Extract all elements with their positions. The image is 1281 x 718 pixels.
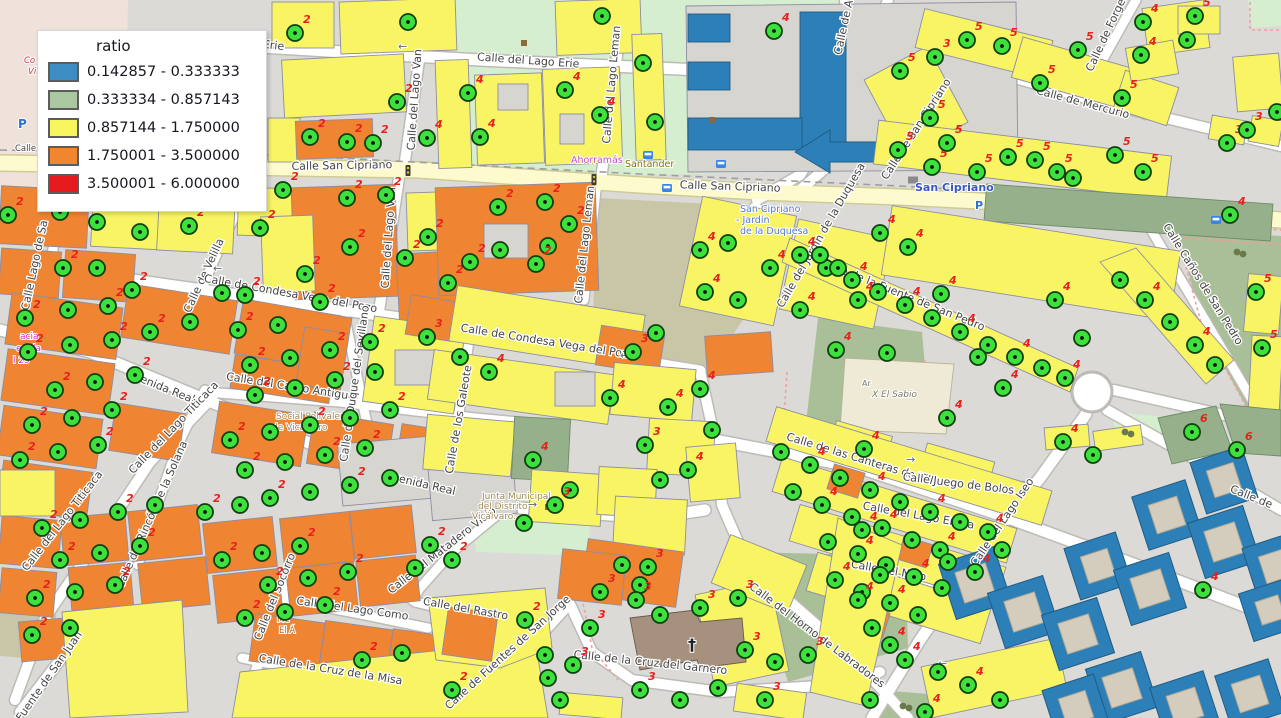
point-marker-dot <box>791 490 795 494</box>
point-marker-dot <box>608 396 612 400</box>
point-marker-dot <box>1190 430 1194 434</box>
value-label: 3 <box>816 635 824 648</box>
point-marker-dot <box>930 165 934 169</box>
building <box>62 600 188 718</box>
point-marker-dot <box>363 446 367 450</box>
point-marker-dot <box>1071 176 1075 180</box>
poi-label: ← <box>213 262 222 275</box>
traffic-light-icon <box>407 171 409 173</box>
point-marker-dot <box>666 405 670 409</box>
point-marker-dot <box>880 526 884 530</box>
value-label: 2 <box>394 175 402 188</box>
point-marker-dot <box>779 450 783 454</box>
building <box>688 14 730 42</box>
value-label: 2 <box>123 565 131 578</box>
point-marker-dot <box>268 496 272 500</box>
value-label: 4 <box>695 450 704 463</box>
point-marker-dot <box>930 316 934 320</box>
value-label: 4 <box>897 625 906 638</box>
point-marker-dot <box>1193 343 1197 347</box>
point-marker-dot <box>768 266 772 270</box>
value-label: 2 <box>405 82 413 95</box>
point-marker-dot <box>936 670 940 674</box>
point-marker-dot <box>698 387 702 391</box>
value-label: 4 <box>921 557 930 570</box>
value-label: 4 <box>865 280 874 293</box>
point-marker-dot <box>868 698 872 702</box>
point-marker-dot <box>1235 448 1239 452</box>
value-label: 4 <box>967 312 976 325</box>
point-marker-dot <box>268 430 272 434</box>
traffic-light-icon <box>593 180 595 182</box>
point-marker-dot <box>820 503 824 507</box>
value-label: 4 <box>1072 358 1081 371</box>
point-marker-dot <box>345 140 349 144</box>
legend-swatch <box>48 146 79 166</box>
value-label: 2 <box>338 330 346 343</box>
value-label: 4 <box>572 70 581 83</box>
value-label: 3 <box>648 670 656 683</box>
point-marker-dot <box>808 463 812 467</box>
legend-label: 3.500001 - 6.000000 <box>87 176 240 192</box>
value-label: 2 <box>213 492 221 505</box>
point-marker-dot <box>903 658 907 662</box>
point-marker-dot <box>220 291 224 295</box>
point-marker-dot <box>1000 548 1004 552</box>
value-label: 4 <box>915 227 924 240</box>
point-marker-dot <box>61 266 65 270</box>
point-marker-dot <box>308 490 312 494</box>
point-marker-dot <box>710 428 714 432</box>
value-label: 6 <box>1200 412 1208 425</box>
value-label: 4 <box>982 552 991 565</box>
value-label: 5 <box>908 51 916 64</box>
value-label: 3 <box>644 580 652 593</box>
point-marker-dot <box>96 443 100 447</box>
point-marker-dot <box>658 478 662 482</box>
point-marker-dot <box>406 20 410 24</box>
value-label: 3 <box>746 578 754 591</box>
value-label: 5 <box>1123 135 1131 148</box>
point-marker-dot <box>130 288 134 292</box>
point-marker-dot <box>23 316 27 320</box>
value-label: 2 <box>63 370 71 383</box>
point-marker-dot <box>281 188 285 192</box>
point-marker-dot <box>346 570 350 574</box>
point-marker-dot <box>658 613 662 617</box>
value-label: 2 <box>291 170 299 183</box>
value-label: 4 <box>947 530 956 543</box>
point-marker-dot <box>425 335 429 339</box>
point-marker-dot <box>328 348 332 352</box>
point-marker-dot <box>425 136 429 140</box>
building <box>688 62 730 90</box>
value-label: 2 <box>533 600 541 613</box>
point-marker-dot <box>450 558 454 562</box>
value-label: 2 <box>43 578 51 591</box>
point-marker-dot <box>833 578 837 582</box>
poi-label: Santander <box>625 159 674 170</box>
point-marker-dot <box>856 598 860 602</box>
point-marker-dot <box>348 483 352 487</box>
point-marker-dot <box>906 245 910 249</box>
point-marker-dot <box>306 576 310 580</box>
value-label: 5 <box>1048 63 1056 76</box>
point-marker-dot <box>885 351 889 355</box>
value-label: 2 <box>276 565 284 578</box>
point-marker-dot <box>850 278 854 282</box>
value-label: 4 <box>829 485 838 498</box>
legend-title: ratio <box>96 37 266 55</box>
point-marker-dot <box>33 596 37 600</box>
value-label: 2 <box>120 320 128 333</box>
point-marker-dot <box>236 328 240 332</box>
point-marker-dot <box>850 515 854 519</box>
value-label: 2 <box>381 123 389 136</box>
point-marker-dot <box>546 676 550 680</box>
point-marker-dot <box>333 378 337 382</box>
value-label: 2 <box>506 187 514 200</box>
value-label: 4 <box>487 117 496 130</box>
tree-icon <box>1128 431 1135 438</box>
value-label: 2 <box>333 435 341 448</box>
value-label: 2 <box>356 552 364 565</box>
point-marker-dot <box>928 510 932 514</box>
point-marker-dot <box>998 698 1002 702</box>
value-label: 4 <box>843 330 852 343</box>
point-marker-dot <box>260 551 264 555</box>
point-marker-dot <box>293 386 297 390</box>
building <box>435 59 472 168</box>
value-label: 2 <box>358 465 366 478</box>
point-marker-dot <box>563 88 567 92</box>
value-label: 2 <box>253 450 261 463</box>
poi-label: P <box>975 199 983 212</box>
point-marker-dot <box>938 548 942 552</box>
value-label: 5 <box>985 152 993 165</box>
value-label: 2 <box>71 248 79 261</box>
point-marker-dot <box>308 423 312 427</box>
point-marker-dot <box>798 253 802 257</box>
point-marker-dot <box>571 663 575 667</box>
value-label: 4 <box>777 248 786 261</box>
bus-stop-icon <box>718 162 725 165</box>
legend-item-0: 0.142857 - 0.333333 <box>48 58 266 86</box>
point-marker-dot <box>958 520 962 524</box>
legend-rows: 0.142857 - 0.3333330.333334 - 0.8571430.… <box>38 58 266 198</box>
tree-icon <box>900 703 907 710</box>
value-label: 3 <box>598 608 606 621</box>
point-marker-dot <box>1139 53 1143 57</box>
value-label: 4 <box>1210 570 1219 583</box>
value-label: 2 <box>140 270 148 283</box>
point-marker-dot <box>496 205 500 209</box>
value-label: 4 <box>1062 280 1071 293</box>
point-marker-dot <box>78 518 82 522</box>
value-label: 2 <box>230 540 238 553</box>
point-marker-dot <box>946 560 950 564</box>
point-marker-dot <box>903 303 907 307</box>
value-label: 2 <box>378 322 386 335</box>
point-marker-dot <box>806 653 810 657</box>
point-marker-dot <box>228 438 232 442</box>
point-marker-dot <box>703 290 707 294</box>
point-marker-dot <box>113 583 117 587</box>
value-label: 2 <box>328 282 336 295</box>
point-marker-dot <box>1225 141 1229 145</box>
value-label: 3 <box>435 317 443 330</box>
point-marker-dot <box>939 292 943 296</box>
value-label: 3 <box>563 485 571 498</box>
point-marker-dot <box>371 141 375 145</box>
point-marker-dot <box>1193 14 1197 18</box>
traffic-light-icon <box>593 176 595 178</box>
point-marker-dot <box>898 500 902 504</box>
bin-icon <box>521 40 527 46</box>
value-label: 2 <box>33 298 41 311</box>
legend-panel: ratio 0.142857 - 0.3333330.333334 - 0.85… <box>37 30 267 212</box>
value-label: 4 <box>712 272 721 285</box>
point-marker-dot <box>95 220 99 224</box>
value-label: 2 <box>358 227 366 240</box>
value-label: 4 <box>932 692 941 705</box>
value-label: 2 <box>268 208 276 221</box>
point-marker-dot <box>68 626 72 630</box>
poi-label: Junta Municipal <box>481 492 551 502</box>
point-marker-dot <box>6 213 10 217</box>
value-label: 4 <box>897 583 906 596</box>
value-label: 3 <box>753 630 761 643</box>
point-marker-dot <box>1040 366 1044 370</box>
legend-label: 1.750001 - 3.500000 <box>87 148 240 164</box>
point-marker-dot <box>646 565 650 569</box>
point-marker-dot <box>73 590 77 594</box>
value-label: 5 <box>1203 0 1211 9</box>
value-label: 4 <box>1237 195 1246 208</box>
value-label: 2 <box>158 312 166 325</box>
value-label: 2 <box>478 242 486 255</box>
value-label: 2 <box>370 640 378 653</box>
point-marker-dot <box>643 443 647 447</box>
legend-swatch <box>48 174 79 194</box>
point-marker-dot <box>686 468 690 472</box>
point-marker-dot <box>638 583 642 587</box>
value-label: 4 <box>807 235 816 248</box>
point-marker-dot <box>856 298 860 302</box>
point-marker-dot <box>1185 38 1189 42</box>
point-marker-dot <box>243 468 247 472</box>
value-label: 4 <box>1150 2 1159 15</box>
point-marker-dot <box>838 476 842 480</box>
point-marker-dot <box>1201 588 1205 592</box>
point-marker-dot <box>1091 453 1095 457</box>
point-marker-dot <box>1080 336 1084 340</box>
value-label: 4 <box>817 445 826 458</box>
value-label: 2 <box>318 117 326 130</box>
point-marker-dot <box>487 370 491 374</box>
point-marker-dot <box>736 298 740 302</box>
value-label: 2 <box>355 178 363 191</box>
value-label: 4 <box>807 290 816 303</box>
point-marker-dot <box>26 350 30 354</box>
value-label: 2 <box>544 244 552 257</box>
point-marker-dot <box>940 586 944 590</box>
legend-swatch <box>48 118 79 138</box>
roundabout <box>1072 372 1112 412</box>
point-marker-dot <box>116 510 120 514</box>
building <box>688 118 802 150</box>
value-label: 2 <box>40 405 48 418</box>
point-marker-dot <box>220 558 224 562</box>
point-marker-dot <box>298 544 302 548</box>
value-label: 2 <box>253 275 261 288</box>
point-marker-dot <box>323 453 327 457</box>
value-label: 2 <box>577 204 585 217</box>
poi-label: † <box>688 635 696 654</box>
point-marker-dot <box>553 503 557 507</box>
point-marker-dot <box>678 698 682 702</box>
tree-icon <box>1122 429 1129 436</box>
point-marker-dot <box>360 658 364 662</box>
value-label: 2 <box>238 420 246 433</box>
point-marker-dot <box>238 503 242 507</box>
building <box>350 505 417 559</box>
point-marker-dot <box>945 416 949 420</box>
value-label: 4 <box>937 492 946 505</box>
point-marker <box>1269 104 1281 120</box>
point-marker-dot <box>1013 355 1017 359</box>
poi-label: X El Sabio <box>871 390 918 400</box>
point-marker-dot <box>868 488 872 492</box>
point-marker-dot <box>446 281 450 285</box>
point-marker-dot <box>93 380 97 384</box>
value-label: 4 <box>1148 35 1157 48</box>
point-marker-dot <box>716 686 720 690</box>
point-marker-dot <box>534 262 538 266</box>
value-label: 3 <box>581 645 589 658</box>
point-marker-dot <box>653 120 657 124</box>
point-marker-dot <box>468 260 472 264</box>
point-marker-dot <box>531 458 535 462</box>
value-label: 2 <box>313 254 321 267</box>
point-marker-dot <box>1000 44 1004 48</box>
value-label: 2 <box>355 122 363 135</box>
point-marker-dot <box>870 626 874 630</box>
point-marker-dot <box>878 573 882 577</box>
value-label: 5 <box>1010 26 1018 39</box>
value-label: 2 <box>343 360 351 373</box>
point-marker-dot <box>388 476 392 480</box>
point-marker-dot <box>258 226 262 230</box>
point-marker-dot <box>1033 158 1037 162</box>
value-label: 2 <box>28 440 36 453</box>
point-marker-dot <box>973 570 977 574</box>
point-marker-dot <box>1061 440 1065 444</box>
value-label: 4 <box>887 213 896 226</box>
point-marker-dot <box>373 370 377 374</box>
point-marker-dot <box>1275 110 1279 114</box>
point-marker-dot <box>95 266 99 270</box>
point-marker-dot <box>66 308 70 312</box>
value-label: 5 <box>1130 78 1138 91</box>
point-marker-dot <box>133 373 137 377</box>
poi-label: P <box>18 117 27 131</box>
value-label: 2 <box>40 615 48 628</box>
value-label: 5 <box>1264 272 1272 285</box>
poi-label: del Distrito <box>478 502 528 512</box>
value-label: 4 <box>1010 368 1019 381</box>
point-marker-dot <box>276 323 280 327</box>
legend-label: 0.333334 - 0.857143 <box>87 92 240 108</box>
street-label: Calle San Cipriano <box>291 158 392 173</box>
value-label: 2 <box>36 332 44 345</box>
point-marker-dot <box>106 304 110 308</box>
poi-label: San Cipriano <box>740 204 801 215</box>
point-marker-dot <box>641 61 645 65</box>
value-label: 3 <box>708 588 716 601</box>
point-marker-dot <box>522 521 526 525</box>
point-marker-dot <box>834 348 838 352</box>
value-label: 4 <box>607 95 616 108</box>
poi-label: de Vicálvaro <box>272 423 328 433</box>
value-label: 2 <box>438 525 446 538</box>
point-marker-dot <box>698 248 702 252</box>
building <box>632 34 666 161</box>
point-marker-dot <box>743 648 747 652</box>
point-marker-dot <box>878 231 882 235</box>
point-marker-dot <box>1053 298 1057 302</box>
point-marker-dot <box>726 241 730 245</box>
value-label: 4 <box>975 665 984 678</box>
tree-icon <box>1240 251 1247 258</box>
point-marker-dot <box>523 618 527 622</box>
point-marker-dot <box>110 408 114 412</box>
value-label: 2 <box>333 585 341 598</box>
point-marker-dot <box>400 651 404 655</box>
point-marker-dot <box>1055 170 1059 174</box>
value-label: 2 <box>68 540 76 553</box>
value-label: 2 <box>318 405 326 418</box>
point-marker-dot <box>243 616 247 620</box>
point-marker-dot <box>826 540 830 544</box>
point-marker-dot <box>428 543 432 547</box>
value-label: 4 <box>871 429 880 442</box>
poi-label: Vi <box>28 67 37 77</box>
value-label: 5 <box>906 130 914 143</box>
point-marker-dot <box>634 598 638 602</box>
value-label: 4 <box>540 440 549 453</box>
value-label: 5 <box>1151 152 1159 165</box>
point-marker-dot <box>58 558 62 562</box>
point-marker-dot <box>110 338 114 342</box>
legend-item-3: 1.750001 - 3.500000 <box>48 142 266 170</box>
value-label: 5 <box>1270 328 1278 341</box>
point-marker-dot <box>598 590 602 594</box>
point-marker-dot <box>426 235 430 239</box>
bus-stop-icon <box>1213 218 1220 221</box>
value-label: 6 <box>1245 430 1253 443</box>
bin-icon <box>709 117 715 123</box>
value-label: 4 <box>865 580 874 593</box>
point-marker-dot <box>30 633 34 637</box>
point-marker-dot <box>888 643 892 647</box>
point-marker-dot <box>303 272 307 276</box>
value-label: 4 <box>496 352 505 365</box>
point-marker-dot <box>1213 363 1217 367</box>
poi-label: San Cipriano <box>915 181 994 194</box>
value-label: 4 <box>707 369 716 382</box>
map-viewport[interactable]: Calle del Lago Eriel Lago ErieCalle del … <box>0 0 1281 718</box>
